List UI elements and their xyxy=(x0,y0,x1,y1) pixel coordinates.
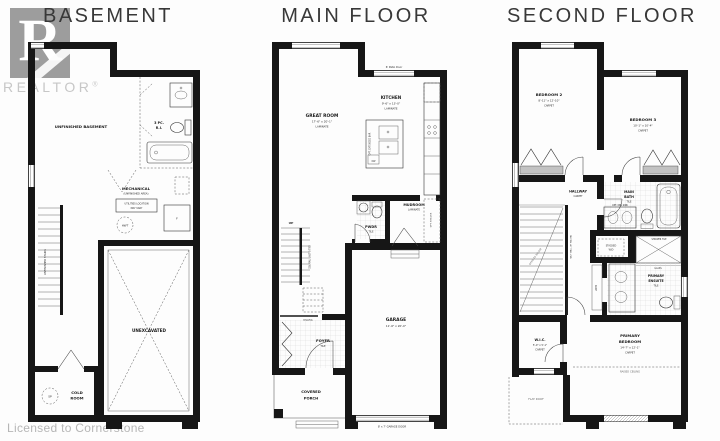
main-floor-plan: 6' Patio Door 8' x 7' GARAGE DOOR GREAT … xyxy=(272,42,447,429)
bath-ri-label-1: 3 PC. xyxy=(154,121,164,125)
bedroom3-door-swing xyxy=(622,157,640,175)
basement-bath-rough-in: 3 PC. R.I. xyxy=(140,77,193,168)
primary-bedroom-door-swing xyxy=(567,297,585,315)
basement-stairs-label: UNFINISHED STAIRS xyxy=(43,249,47,275)
sink-icon xyxy=(379,141,398,154)
bedroom3-floor: CARPET xyxy=(638,129,648,133)
primary-bedroom-label-1: PRIMARY xyxy=(620,333,640,338)
second-floor-plan: BEDROOM 2 8'-11" x 12'-10" CARPET BEDROO… xyxy=(509,42,688,429)
bedroom2-door-swing xyxy=(565,157,583,175)
mechanical-sublabel: (UNFINISHED AREA) xyxy=(124,192,149,196)
bedroom3-label: BEDROOM 3 xyxy=(630,117,657,122)
porch-label-1: COVERED xyxy=(301,390,321,394)
basement-unexcavated: UNEXCAVATED xyxy=(108,250,189,411)
mudroom-label: MUDROOM xyxy=(403,203,425,207)
garage-door-note: 8' x 7' GARAGE DOOR xyxy=(378,425,406,429)
main-bath-label-1: MAIN xyxy=(624,190,634,194)
foyer-label: FOYER xyxy=(316,338,330,343)
flat-roof: FLAT ROOF xyxy=(509,377,563,424)
wic-dim: 5'-0" x 5'-1" xyxy=(533,344,547,347)
open-to-below-label: OPEN TO BELOW xyxy=(529,247,543,266)
wic-floor: CARPET xyxy=(535,349,545,352)
sump-label: SP xyxy=(48,395,52,399)
kitchen-label: KITCHEN xyxy=(381,95,402,100)
up-label: UP xyxy=(289,221,294,225)
wic-door-swing xyxy=(545,344,563,362)
dishwasher-label: DW xyxy=(372,160,377,163)
toilet-icon xyxy=(171,123,184,133)
basement-cold-room: SP COLD ROOM xyxy=(42,350,84,404)
kitchen-counter xyxy=(424,83,440,195)
stair-rail-note: DBL RAIL LAST 3 TRD xyxy=(309,245,312,269)
bedroom2-dim: 8'-11" x 12'-10" xyxy=(538,99,559,103)
ensuite-label-2: ENSUITE xyxy=(648,279,663,283)
great-room-dim: 17'-6" x 20'-1" xyxy=(312,120,333,124)
bedroom-3: BEDROOM 3 10'-1" x 10'-4" CARPET xyxy=(622,117,680,175)
utilities-note-1: UTILITIES LOCATION xyxy=(125,203,149,206)
stacked-wd-label-2: W/D xyxy=(609,249,614,252)
second-stairs: HALF WALL W/ RAILING OPEN TO BELOW xyxy=(519,205,573,315)
floorplan-sheet: R REALTOR® BASEMENT MAIN FLOOR SECOND FL… xyxy=(0,0,720,441)
ensuite-label-1: PRIMARY xyxy=(648,274,665,278)
great-room-floor: LAMINATE xyxy=(315,125,328,129)
washer-dryer-icon xyxy=(598,239,624,256)
hallway: HALLWAY CARPET xyxy=(569,190,587,199)
wic: W.I.C. 5'-0" x 5'-1" CARPET xyxy=(533,338,563,362)
main-bath-label-2: BATH xyxy=(624,195,634,199)
primary-bedroom-label-2: BEDROOM xyxy=(619,339,641,344)
cold-room-label-1: COLD xyxy=(71,390,83,395)
furnace-label: F xyxy=(176,217,178,221)
bifold-door xyxy=(521,149,561,165)
bifold-door xyxy=(644,150,680,165)
plans-graphic: UNFINISHED STAIRS 3 PC. R.I. MECHANICAL … xyxy=(0,0,720,441)
main-bath: MAIN BATH TILE OPT. DBL SINK xyxy=(604,182,681,230)
closet-shelf xyxy=(643,166,678,174)
laundry-closet: STACKED W/D xyxy=(598,239,624,256)
utilities-note-2: MAY VARY xyxy=(131,207,143,210)
foyer-floor: TILE xyxy=(320,345,325,348)
kitchen: KITCHEN 9'-6" x 13'-0" LAMINATE DW OPT. … xyxy=(366,83,440,195)
great-room: GREAT ROOM 17'-6" x 20'-1" LAMINATE xyxy=(306,113,339,129)
hwt-label: HWT xyxy=(122,224,129,228)
bedroom2-floor: CARPET xyxy=(544,104,554,108)
linen-label: LINEN xyxy=(595,284,598,291)
unexcavated-label: UNEXCAVATED xyxy=(132,328,166,333)
porch-label-2: PORCH xyxy=(304,397,318,401)
half-wall-note: HALF WALL W/ RAILING xyxy=(570,235,573,259)
kitchen-island: DW OPT. EXTENDED BAR xyxy=(366,120,403,168)
kitchen-floor: LAMINATE xyxy=(384,107,397,111)
stacked-wd-label-1: STACKED xyxy=(606,245,617,248)
basement-stairs: UNFINISHED STAIRS xyxy=(38,205,63,315)
basement-mechanical: MECHANICAL (UNFINISHED AREA) UTILITIES L… xyxy=(108,170,190,233)
powder-label: PWDR xyxy=(365,225,377,229)
primary-bedroom-floor: CARPET xyxy=(625,351,635,355)
patio-door-note: 6' Patio Door xyxy=(386,65,404,69)
mudroom-closet-note: OPT. SHELVES xyxy=(431,212,433,227)
great-room-label: GREAT ROOM xyxy=(306,113,339,119)
bedroom3-dim: 10'-1" x 10'-4" xyxy=(633,124,652,128)
hallway-floor: CARPET xyxy=(573,195,583,198)
primary-ensuite: PRIMARY ENSUITE TILE xyxy=(607,263,681,315)
sink-icon xyxy=(379,126,398,139)
unfinished-basement-label: UNFINISHED BASEMENT xyxy=(55,124,108,129)
basement-plan: UNFINISHED STAIRS 3 PC. R.I. MECHANICAL … xyxy=(28,42,200,429)
toilet-tank xyxy=(185,120,191,135)
hallway-label: HALLWAY xyxy=(569,190,587,194)
closet-shelf xyxy=(520,166,563,174)
powder-room: PWDR TILE xyxy=(355,201,385,242)
primary-bedroom-dim: 14'-7" x 12'-1" xyxy=(620,346,639,350)
linen-closet: LINEN xyxy=(592,265,602,310)
powder-floor: TILE xyxy=(369,231,374,234)
foyer: FOYER TILE xyxy=(279,320,345,368)
main-stairs: UP DBL RAIL LAST 3 TRD RAILING xyxy=(280,221,323,322)
raised-ceiling-note: RAISED CEILING xyxy=(620,370,640,374)
garage: GARAGE 11'-6" x 20'-0" xyxy=(386,317,407,328)
garage-dim: 11'-6" x 20'-0" xyxy=(386,324,407,328)
wic-label: W.I.C. xyxy=(534,338,545,342)
bath-ri-label-2: R.I. xyxy=(156,126,163,130)
island-note: OPT. EXTENDED BAR xyxy=(369,132,372,155)
mudroom-floor: LAMINATE xyxy=(408,209,420,212)
shower-label: SHOWER TILE xyxy=(651,238,667,241)
bedroom2-label: BEDROOM 2 xyxy=(536,92,563,97)
bedroom-2: BEDROOM 2 8'-11" x 12'-10" CARPET xyxy=(520,92,583,175)
garage-label: GARAGE xyxy=(386,317,406,323)
ensuite-floor: TILE xyxy=(654,285,659,288)
covered-porch: COVERED PORCH xyxy=(274,375,345,428)
flat-roof-label: FLAT ROOF xyxy=(528,397,544,401)
mechanical-label: MECHANICAL xyxy=(122,186,151,191)
kitchen-dim: 9'-6" x 13'-0" xyxy=(382,102,401,106)
cold-room-label-2: ROOM xyxy=(70,396,83,401)
basement-walls xyxy=(28,42,200,429)
opt-dbl-sink-note: OPT. DBL SINK xyxy=(612,204,628,207)
